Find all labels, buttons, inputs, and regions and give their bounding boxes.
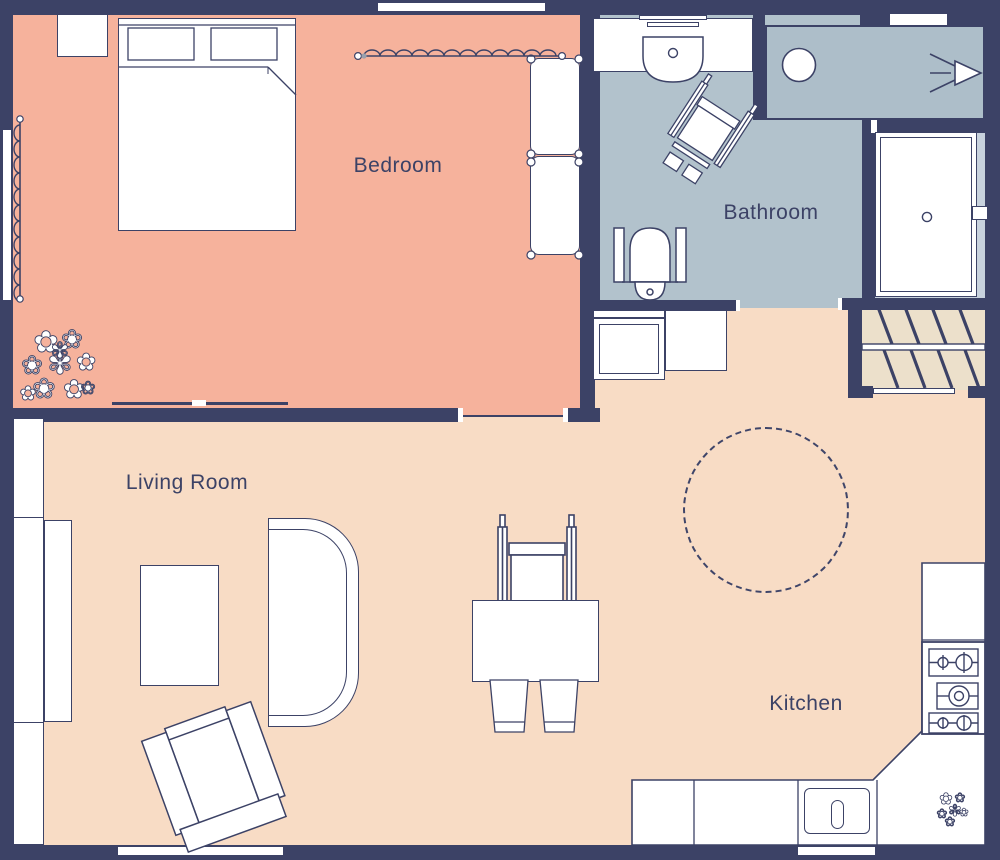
kitchen-label: Kitchen — [769, 692, 843, 716]
curtain-top[interactable] — [352, 50, 568, 66]
bathroom-label: Bathroom — [723, 201, 818, 225]
wall-shelf-mid[interactable] — [13, 517, 44, 723]
svg-text:✿: ✿ — [20, 381, 37, 405]
window-top-right-notch[interactable] — [890, 14, 947, 25]
sideboard[interactable] — [44, 520, 72, 722]
bench-corner-dots — [524, 52, 586, 262]
wall-stairs-bottom-right — [968, 386, 985, 398]
wall-stairs-left — [848, 310, 862, 398]
window-left-bedroom[interactable] — [2, 130, 12, 300]
sliding-door-gap — [192, 400, 206, 406]
wall-bathroom-vestibule — [862, 133, 875, 298]
washing-machine-inner — [599, 324, 659, 374]
sink-shelf — [647, 22, 699, 27]
nightstand[interactable] — [57, 14, 108, 57]
kitchen-faucet — [831, 800, 844, 829]
shower-drain — [781, 47, 817, 83]
plant[interactable]: ✿❀ ❀✾ ✿❀ ✿✾ ✿❀ — [12, 318, 107, 413]
coffee-table[interactable] — [140, 565, 219, 686]
dining-table[interactable] — [472, 600, 599, 682]
sofa-seat-line — [268, 529, 347, 716]
bedroom-label: Bedroom — [354, 154, 443, 178]
stove-cooktop[interactable] — [921, 641, 986, 735]
svg-text:✿: ✿ — [959, 806, 968, 819]
cabinet[interactable] — [665, 310, 727, 371]
dining-chairs[interactable] — [486, 680, 586, 734]
window-behind-sink[interactable] — [798, 846, 875, 856]
wall-stairs-bottom-left — [848, 386, 873, 398]
stairs[interactable] — [862, 305, 985, 390]
svg-text:✿: ✿ — [76, 348, 96, 376]
washer-shelf — [593, 310, 665, 318]
jamb — [458, 408, 463, 422]
bedroom-opening-edge — [463, 415, 563, 417]
jamb — [838, 298, 842, 310]
curtain-left[interactable] — [13, 113, 29, 305]
svg-text:❀: ❀ — [945, 815, 956, 830]
svg-text:❀: ❀ — [80, 378, 95, 399]
jamb — [736, 300, 740, 311]
wall-shelf-bottom[interactable] — [13, 722, 44, 845]
floor-plan: ✿❀ ❀✾ ✿❀ ✿✾ ✿❀ Bedroom — [0, 0, 1000, 860]
svg-text:✾: ✾ — [51, 339, 69, 364]
bed-details — [118, 18, 296, 231]
jamb — [563, 408, 568, 422]
window-top-bedroom[interactable] — [378, 2, 545, 12]
door-latch — [972, 206, 988, 220]
sink-shelf — [639, 15, 707, 20]
living-room-label: Living Room — [126, 471, 248, 495]
entry-threshold[interactable] — [873, 388, 955, 394]
door-handle — [920, 210, 934, 224]
wall-left — [0, 0, 13, 860]
wall-bathroom-bottom-right — [842, 298, 985, 310]
shower-spray-icon — [928, 50, 984, 96]
toilet-with-grab-bars[interactable] — [613, 224, 687, 302]
plant-small[interactable]: ✿❀ ❀✾ ✿❀ — [930, 786, 974, 830]
wall-shelf-top[interactable] — [13, 418, 44, 518]
